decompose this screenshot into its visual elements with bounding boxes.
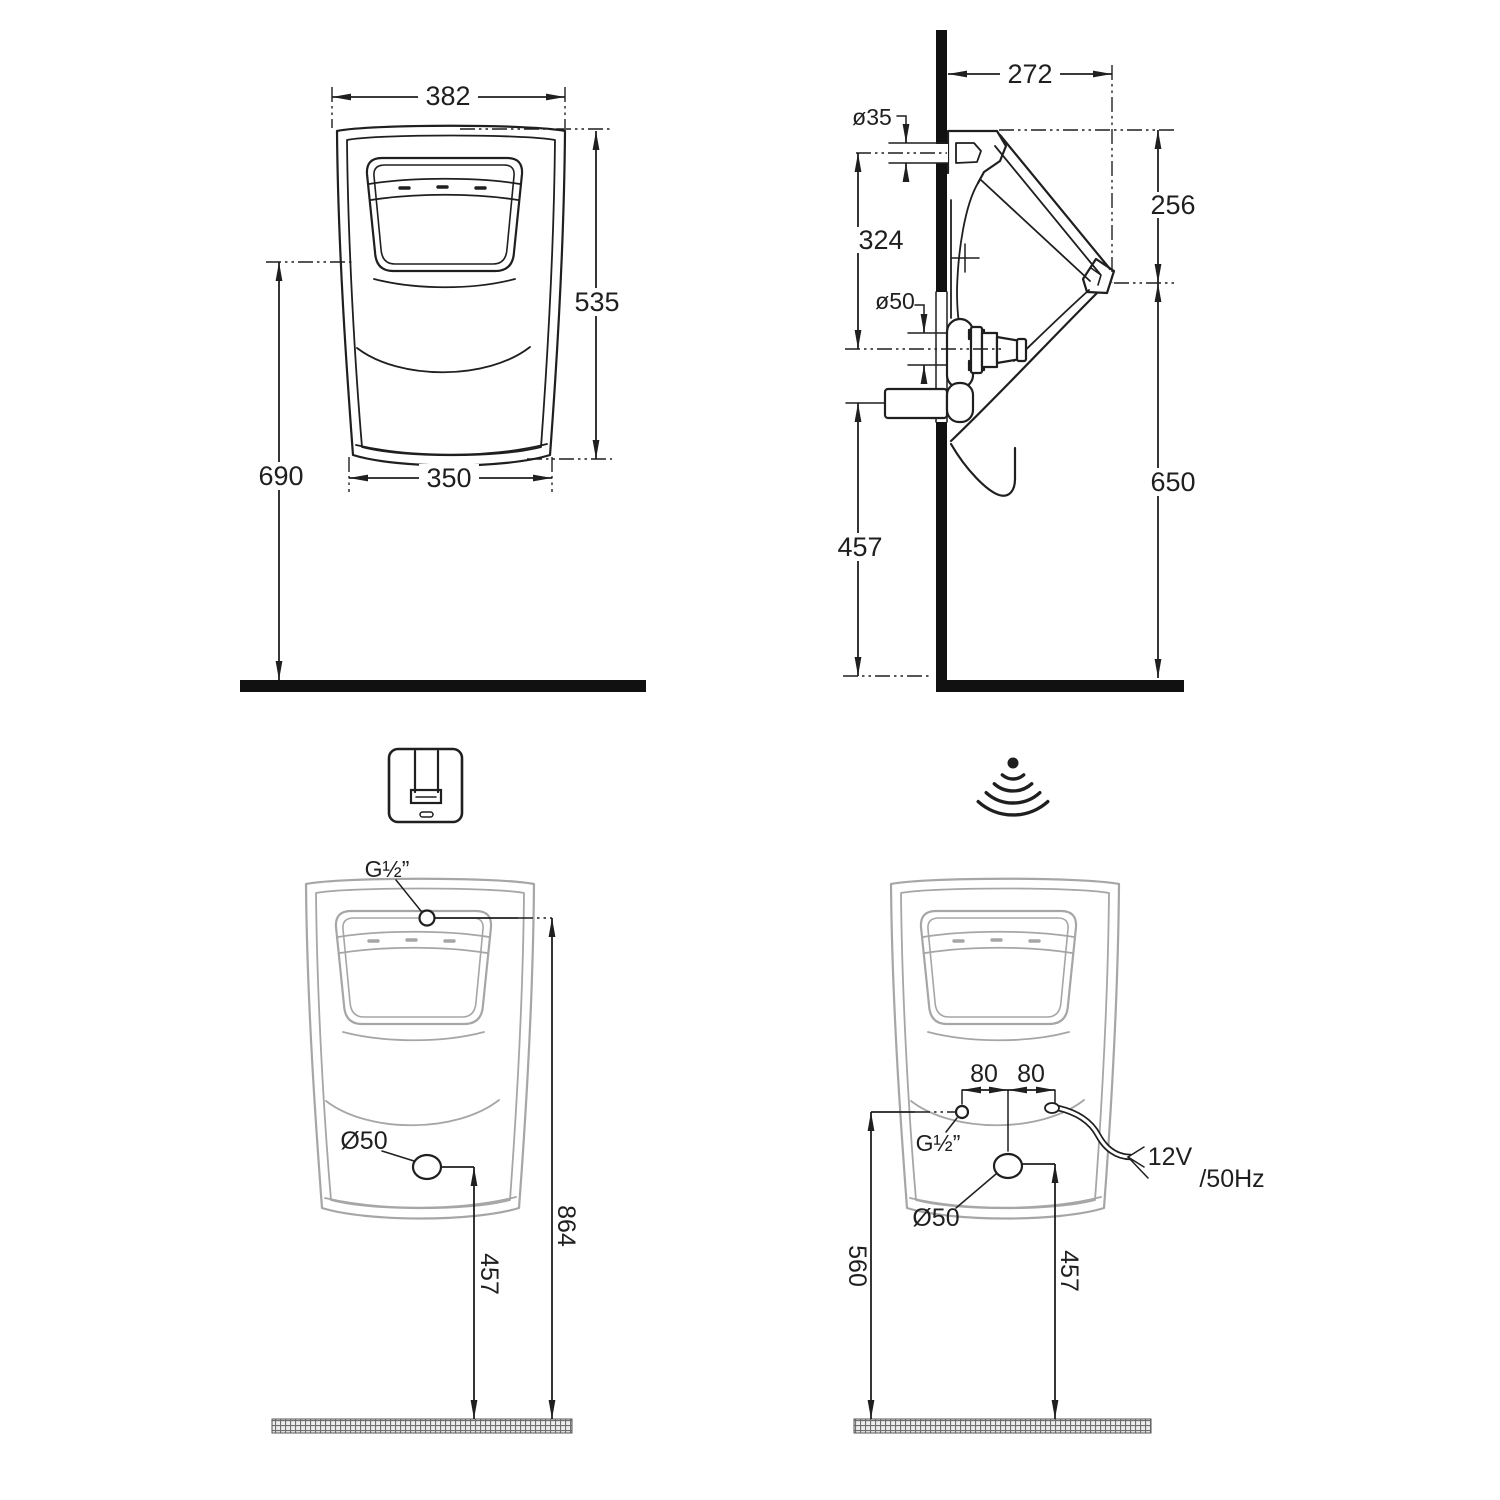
dim-manual-outlet-height: 457: [475, 1253, 503, 1295]
label-frequency: /50Hz: [1199, 1165, 1264, 1193]
side-view: 272 ø35 324 ø50 256 650 457: [832, 30, 1202, 692]
floor-line-side: [936, 680, 1184, 692]
dim-side-inlet-diameter: ø35: [852, 104, 892, 130]
infrared-sensor-icon: [978, 758, 1048, 815]
outlet-port-manual: [413, 1155, 441, 1179]
dim-side-spout-height: 650: [1150, 467, 1195, 497]
dim-manual-inlet-height: 864: [552, 1205, 580, 1247]
urinal-side-profile: [948, 131, 1114, 496]
outlet-port-sensor: [994, 1154, 1022, 1178]
dim-side-drain-height: 457: [837, 532, 882, 562]
urinal-installation-drawing: 382 535 690 350: [0, 0, 1500, 1500]
floor-hatch-manual: [272, 1419, 572, 1433]
dim-side-drain-diameter: ø50: [875, 288, 915, 314]
dim-side-inlet-to-drain: 324: [858, 225, 903, 255]
label-manual-outlet-diameter: Ø50: [340, 1127, 387, 1155]
manual-installation-view: G½” 864 Ø50 457: [272, 749, 580, 1433]
dim-side-depth: 272: [1007, 59, 1052, 89]
label-sensor-outlet-diameter: Ø50: [912, 1204, 959, 1232]
floor-line: [240, 680, 646, 692]
inlet-port-manual: [420, 911, 435, 926]
label-voltage: 12V: [1148, 1143, 1193, 1171]
dim-front-height: 535: [574, 287, 619, 317]
sensor-installation-view: 80 80 G½” 560 Ø50 457 12V /50Hz: [843, 758, 1265, 1434]
drain-pipe-assembly: [885, 319, 1026, 422]
dim-sensor-offset-left: 80: [970, 1060, 998, 1088]
label-sensor-inlet-thread: G½”: [916, 1130, 961, 1156]
inlet-port-sensor: [956, 1106, 968, 1118]
dim-front-bottom-width: 350: [426, 463, 471, 493]
dim-sensor-inlet-height: 560: [843, 1245, 871, 1287]
urinal-front-outline: [337, 126, 565, 466]
dim-front-top-width: 382: [425, 81, 470, 111]
dim-sensor-offset-right: 80: [1017, 1060, 1045, 1088]
front-view: 382 535 690 350: [240, 81, 646, 692]
dim-sensor-outlet-height: 457: [1055, 1250, 1083, 1292]
wall-section-lower: [936, 422, 947, 680]
dim-side-top-to-spout: 256: [1150, 190, 1195, 220]
technical-drawing-page: 382 535 690 350: [0, 0, 1500, 1500]
floor-hatch-sensor: [854, 1419, 1151, 1433]
label-manual-inlet-thread: G½”: [365, 856, 410, 882]
cable-pointer: [1128, 1147, 1148, 1178]
mounting-crosshair: [951, 244, 979, 272]
manual-flush-valve-icon: [389, 749, 462, 822]
dim-front-rim-height: 690: [258, 461, 303, 491]
